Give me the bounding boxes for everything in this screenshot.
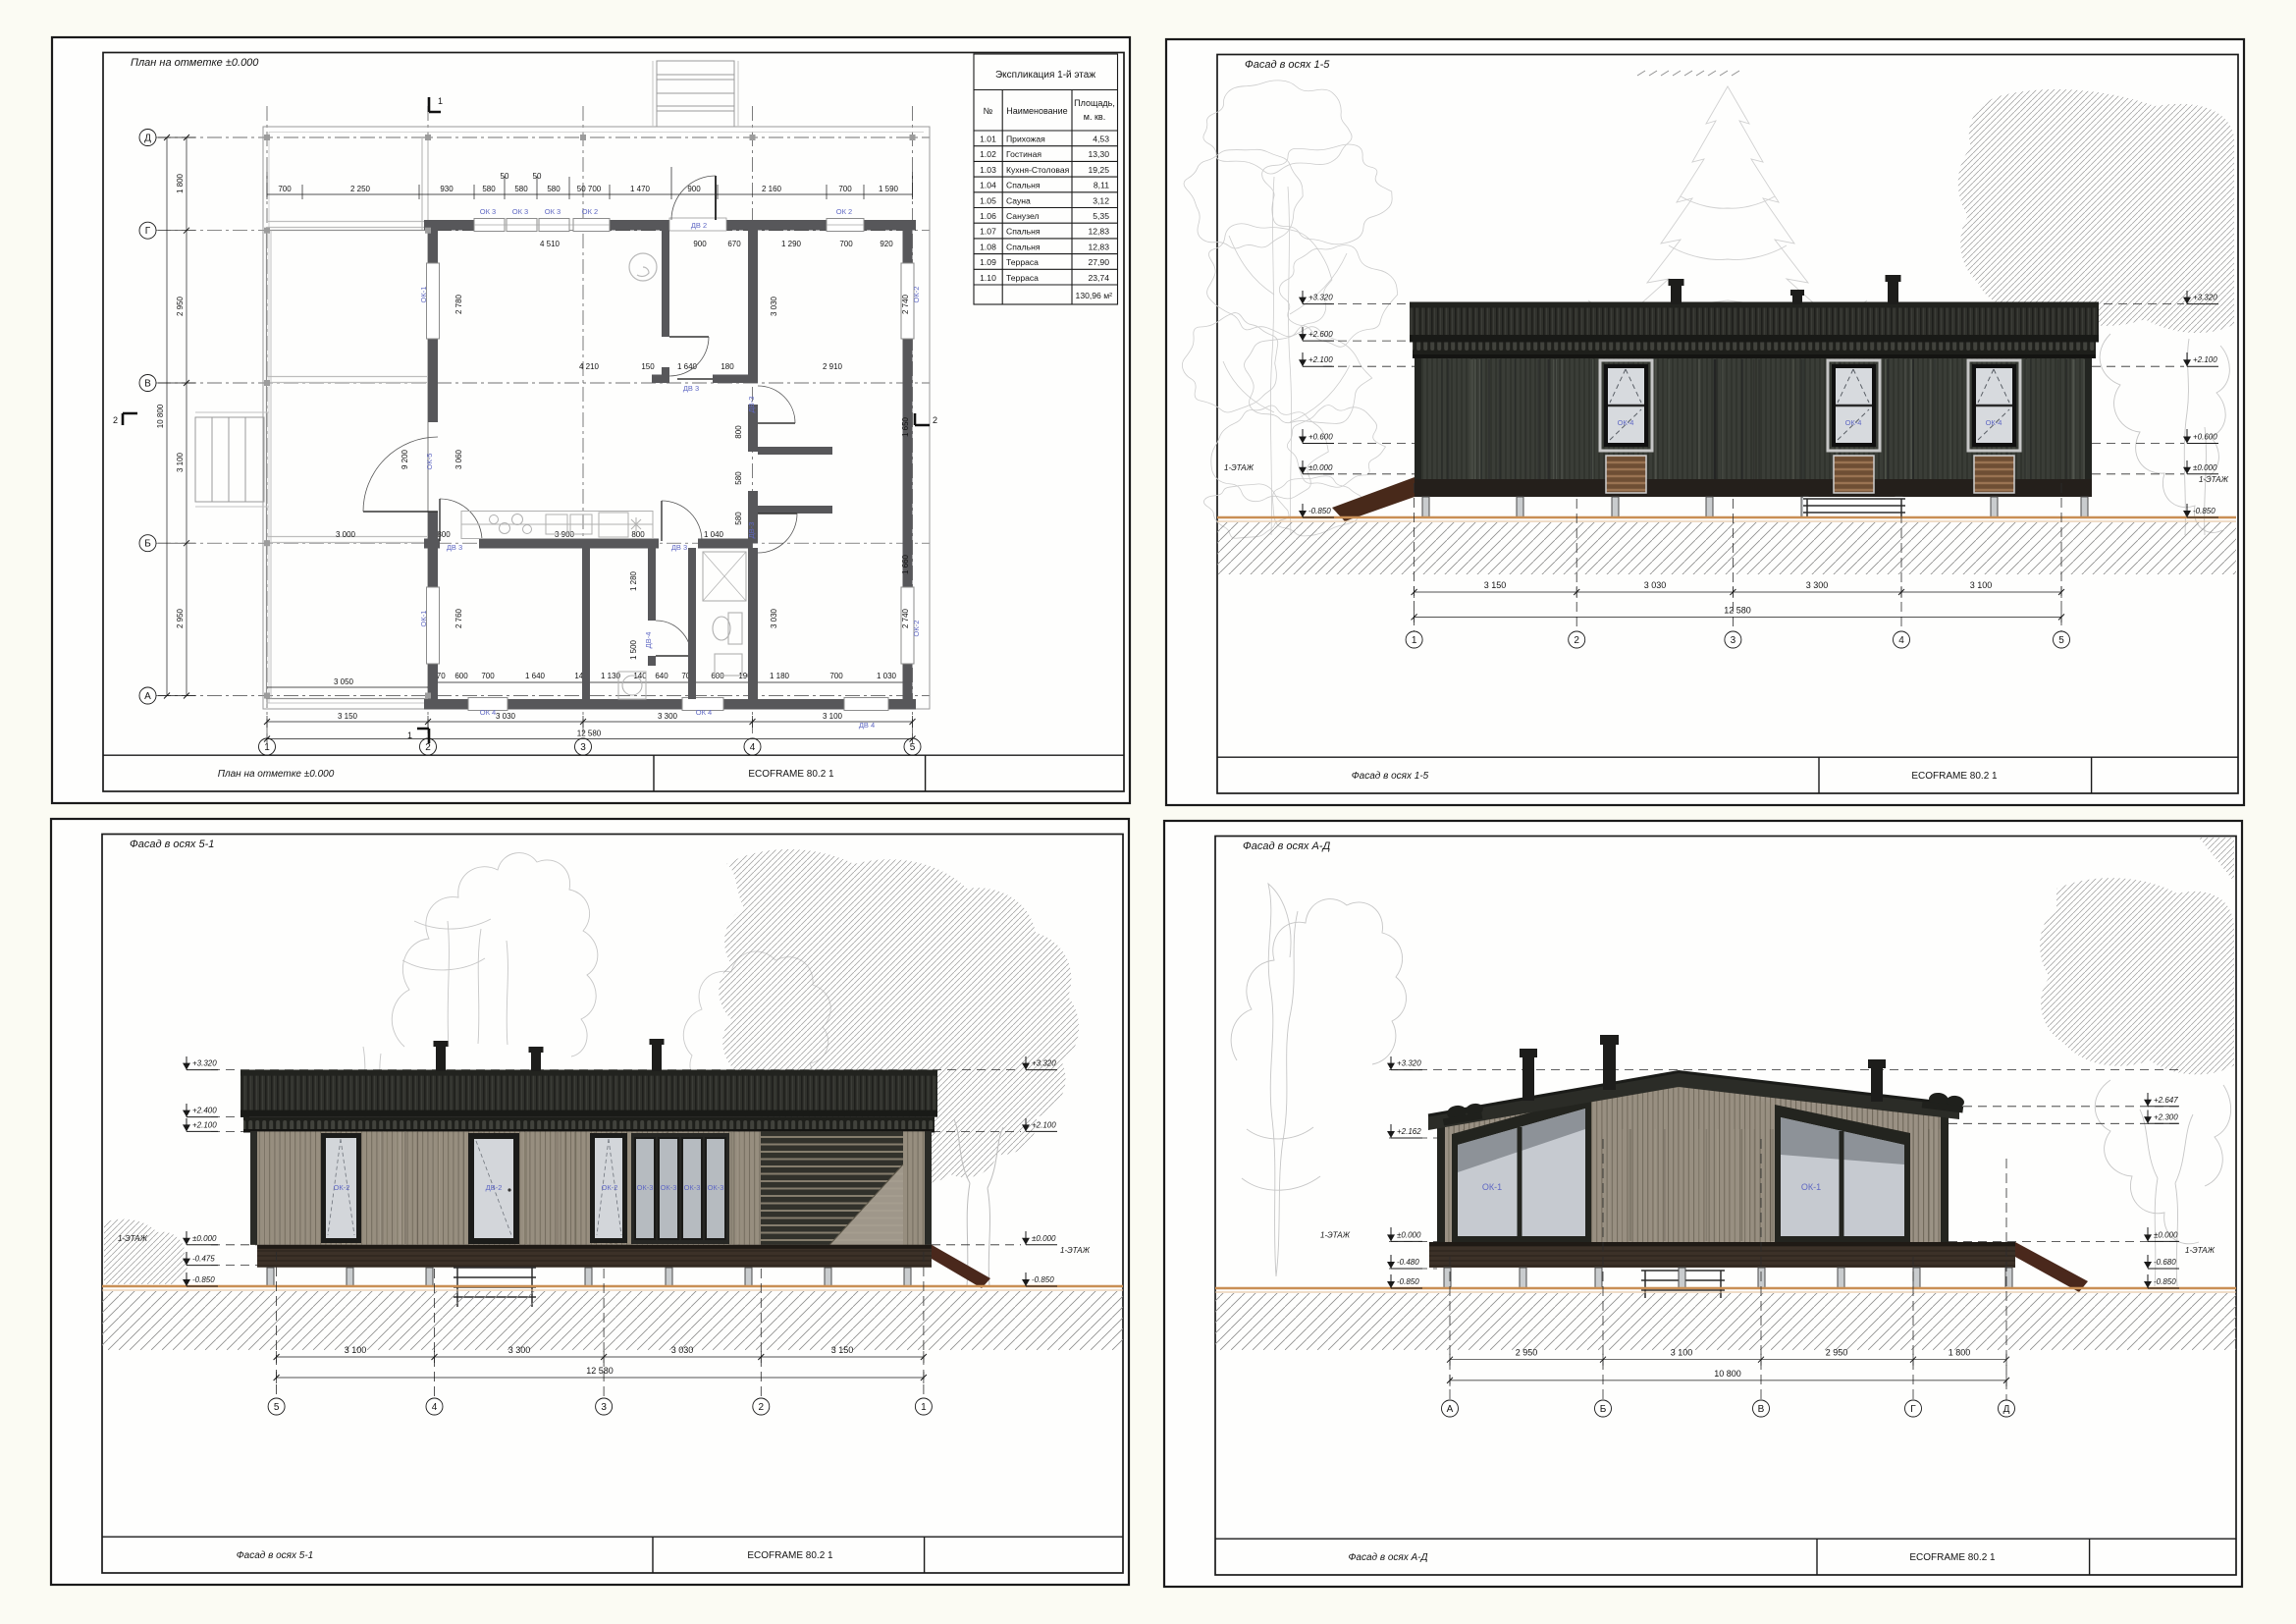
svg-text:ECOFRAME 80.2 1: ECOFRAME 80.2 1 bbox=[1911, 771, 1998, 782]
svg-text:2 250: 2 250 bbox=[350, 185, 371, 193]
svg-text:1.04: 1.04 bbox=[980, 181, 996, 190]
svg-text:1: 1 bbox=[438, 96, 443, 106]
svg-text:2 910: 2 910 bbox=[823, 362, 843, 371]
svg-text:3 030: 3 030 bbox=[1644, 580, 1667, 590]
svg-text:±0.000: ±0.000 bbox=[2193, 463, 2217, 472]
svg-text:Спальня: Спальня bbox=[1006, 227, 1041, 237]
svg-text:ОК-4: ОК-4 bbox=[1986, 418, 2002, 427]
svg-text:1 180: 1 180 bbox=[770, 672, 790, 680]
svg-text:700: 700 bbox=[839, 240, 853, 248]
svg-text:1 030: 1 030 bbox=[877, 672, 897, 680]
svg-text:50 700: 50 700 bbox=[577, 185, 602, 193]
svg-text:580: 580 bbox=[482, 185, 496, 193]
svg-text:+2.300: +2.300 bbox=[2154, 1112, 2178, 1121]
svg-text:В: В bbox=[144, 379, 151, 390]
svg-text:ОК-2: ОК-2 bbox=[912, 287, 921, 303]
svg-text:50: 50 bbox=[533, 172, 542, 181]
svg-text:180: 180 bbox=[721, 362, 734, 371]
svg-text:3 030: 3 030 bbox=[671, 1345, 694, 1355]
svg-text:3,12: 3,12 bbox=[1093, 195, 1109, 205]
svg-text:+2.100: +2.100 bbox=[1308, 355, 1333, 364]
svg-text:3 030: 3 030 bbox=[496, 712, 516, 721]
svg-text:2: 2 bbox=[425, 742, 431, 753]
svg-text:900: 900 bbox=[687, 185, 701, 193]
svg-text:ДВ-4: ДВ-4 bbox=[644, 632, 653, 649]
svg-text:4: 4 bbox=[432, 1402, 438, 1413]
svg-text:+2.100: +2.100 bbox=[192, 1120, 217, 1129]
svg-text:+3.320: +3.320 bbox=[1397, 1059, 1421, 1068]
svg-text:3 100: 3 100 bbox=[176, 452, 185, 472]
svg-text:-0.475: -0.475 bbox=[192, 1255, 215, 1264]
svg-text:130,96 м²: 130,96 м² bbox=[1076, 291, 1113, 300]
svg-text:ОК-4: ОК-4 bbox=[1618, 418, 1634, 427]
svg-text:10 800: 10 800 bbox=[156, 404, 165, 428]
svg-text:800: 800 bbox=[631, 530, 645, 539]
svg-text:Фасад в осях 5-1: Фасад в осях 5-1 bbox=[237, 1550, 314, 1561]
svg-text:5: 5 bbox=[274, 1402, 280, 1413]
svg-text:ОК-5: ОК-5 bbox=[425, 454, 434, 470]
svg-text:580: 580 bbox=[734, 471, 743, 485]
svg-text:Терраса: Терраса bbox=[1006, 273, 1039, 283]
svg-text:±0.000: ±0.000 bbox=[1032, 1234, 1056, 1243]
svg-text:2: 2 bbox=[933, 415, 937, 425]
svg-text:Фасад в осях 1-5: Фасад в осях 1-5 bbox=[1352, 771, 1429, 782]
svg-text:670: 670 bbox=[727, 240, 741, 248]
svg-text:ОК-3: ОК-3 bbox=[708, 1183, 724, 1192]
svg-text:1-ЭТАЖ: 1-ЭТАЖ bbox=[1060, 1246, 1091, 1255]
svg-text:2 780: 2 780 bbox=[454, 294, 463, 314]
svg-text:Сауна: Сауна bbox=[1006, 195, 1031, 205]
svg-text:1: 1 bbox=[921, 1402, 927, 1413]
svg-text:Фасад в осях 1-5: Фасад в осях 1-5 bbox=[1245, 59, 1330, 71]
svg-text:В: В bbox=[1758, 1404, 1765, 1415]
svg-text:12 580: 12 580 bbox=[586, 1366, 614, 1376]
svg-text:2 160: 2 160 bbox=[762, 185, 782, 193]
svg-text:5,35: 5,35 bbox=[1093, 211, 1109, 221]
svg-text:4 210: 4 210 bbox=[579, 362, 600, 371]
svg-text:+0.600: +0.600 bbox=[1308, 433, 1333, 442]
svg-text:ДВ 2: ДВ 2 bbox=[691, 221, 707, 230]
svg-text:2: 2 bbox=[759, 1402, 765, 1413]
svg-text:1 130: 1 130 bbox=[601, 672, 621, 680]
svg-text:ДВ-3: ДВ-3 bbox=[747, 397, 756, 413]
svg-text:ECOFRAME 80.2 1: ECOFRAME 80.2 1 bbox=[747, 1550, 833, 1561]
svg-text:Прихожая: Прихожая bbox=[1006, 135, 1045, 144]
svg-text:2 950: 2 950 bbox=[1516, 1348, 1538, 1358]
svg-text:3 000: 3 000 bbox=[336, 530, 356, 539]
svg-text:1-ЭТАЖ: 1-ЭТАЖ bbox=[2199, 475, 2229, 484]
svg-text:700: 700 bbox=[838, 185, 852, 193]
svg-text:ОК-2: ОК-2 bbox=[334, 1183, 350, 1192]
svg-text:ОК-1: ОК-1 bbox=[1482, 1182, 1502, 1192]
svg-text:1 660: 1 660 bbox=[901, 554, 910, 574]
svg-text:+2.400: +2.400 bbox=[192, 1107, 217, 1115]
svg-text:13,30: 13,30 bbox=[1088, 149, 1109, 159]
svg-text:ОК 2: ОК 2 bbox=[582, 207, 598, 216]
svg-text:12,83: 12,83 bbox=[1088, 227, 1109, 237]
svg-text:4: 4 bbox=[1898, 635, 1904, 646]
svg-text:+2.100: +2.100 bbox=[1032, 1120, 1056, 1129]
svg-text:+2.600: +2.600 bbox=[1308, 330, 1333, 339]
svg-text:1-ЭТАЖ: 1-ЭТАЖ bbox=[118, 1234, 148, 1243]
svg-text:12 580: 12 580 bbox=[577, 730, 602, 738]
svg-text:±0.000: ±0.000 bbox=[192, 1234, 217, 1243]
svg-text:-0.850: -0.850 bbox=[2193, 507, 2216, 515]
svg-text:3 100: 3 100 bbox=[345, 1345, 367, 1355]
svg-text:1.01: 1.01 bbox=[980, 135, 996, 144]
svg-text:+3.320: +3.320 bbox=[1308, 294, 1333, 302]
svg-text:-0.850: -0.850 bbox=[192, 1275, 215, 1284]
svg-text:Площадь,: Площадь, bbox=[1074, 98, 1115, 108]
svg-text:Фасад в осях А-Д: Фасад в осях А-Д bbox=[1348, 1552, 1427, 1563]
svg-text:Д: Д bbox=[2003, 1404, 2010, 1415]
svg-text:2: 2 bbox=[113, 415, 118, 425]
svg-text:ECOFRAME 80.2 1: ECOFRAME 80.2 1 bbox=[1909, 1552, 1996, 1563]
svg-text:1.07: 1.07 bbox=[980, 227, 996, 237]
svg-text:1 040: 1 040 bbox=[704, 530, 724, 539]
svg-text:12,83: 12,83 bbox=[1088, 242, 1109, 251]
svg-text:3 150: 3 150 bbox=[338, 712, 358, 721]
svg-text:-0.850: -0.850 bbox=[1397, 1277, 1419, 1286]
svg-text:ОК-1: ОК-1 bbox=[1801, 1182, 1821, 1192]
svg-text:Д: Д bbox=[144, 134, 151, 144]
svg-text:1 500: 1 500 bbox=[629, 639, 638, 660]
svg-text:ОК 2: ОК 2 bbox=[836, 207, 852, 216]
svg-text:3: 3 bbox=[601, 1402, 607, 1413]
svg-text:Экспликация 1-й этаж: Экспликация 1-й этаж bbox=[995, 70, 1095, 81]
svg-text:23,74: 23,74 bbox=[1088, 273, 1109, 283]
svg-text:640: 640 bbox=[655, 672, 668, 680]
svg-text:Спальня: Спальня bbox=[1006, 242, 1041, 251]
svg-text:-0.850: -0.850 bbox=[2154, 1277, 2176, 1286]
svg-text:Г: Г bbox=[1910, 1404, 1916, 1415]
svg-text:580: 580 bbox=[547, 185, 561, 193]
svg-text:1 470: 1 470 bbox=[630, 185, 651, 193]
svg-text:ОК-3: ОК-3 bbox=[661, 1183, 677, 1192]
svg-text:1: 1 bbox=[264, 742, 270, 753]
svg-text:Фасад в осях А-Д: Фасад в осях А-Д bbox=[1243, 840, 1330, 852]
svg-text:700: 700 bbox=[278, 185, 292, 193]
svg-text:-0.680: -0.680 bbox=[2154, 1258, 2176, 1267]
svg-text:1-ЭТАЖ: 1-ЭТАЖ bbox=[1320, 1230, 1351, 1239]
svg-text:4 510: 4 510 bbox=[540, 240, 561, 248]
svg-text:План на отметке ±0.000: План на отметке ±0.000 bbox=[131, 57, 259, 69]
svg-text:2 950: 2 950 bbox=[1826, 1348, 1848, 1358]
svg-text:1.10: 1.10 bbox=[980, 273, 996, 283]
svg-text:ОК-2: ОК-2 bbox=[912, 621, 921, 637]
svg-text:5: 5 bbox=[910, 742, 916, 753]
svg-text:3 100: 3 100 bbox=[823, 712, 843, 721]
svg-text:1.06: 1.06 bbox=[980, 211, 996, 221]
svg-text:3 300: 3 300 bbox=[658, 712, 678, 721]
svg-text:19,25: 19,25 bbox=[1088, 165, 1109, 175]
svg-text:930: 930 bbox=[440, 185, 454, 193]
svg-text:800: 800 bbox=[734, 425, 743, 439]
svg-text:4,53: 4,53 bbox=[1093, 135, 1109, 144]
svg-text:1.02: 1.02 bbox=[980, 149, 996, 159]
svg-text:ДВ 3: ДВ 3 bbox=[683, 384, 699, 393]
svg-text:1: 1 bbox=[1412, 635, 1417, 646]
svg-text:10 800: 10 800 bbox=[1714, 1369, 1741, 1379]
svg-text:ОК-2: ОК-2 bbox=[602, 1183, 618, 1192]
svg-text:50: 50 bbox=[501, 172, 509, 181]
svg-text:150: 150 bbox=[641, 362, 655, 371]
svg-text:2 760: 2 760 bbox=[454, 608, 463, 628]
svg-text:3: 3 bbox=[1731, 635, 1736, 646]
svg-text:ОК-1: ОК-1 bbox=[419, 287, 428, 303]
svg-text:Б: Б bbox=[144, 539, 151, 550]
svg-text:3 300: 3 300 bbox=[508, 1345, 531, 1355]
svg-text:3 100: 3 100 bbox=[1970, 580, 1993, 590]
svg-text:1.03: 1.03 bbox=[980, 165, 996, 175]
svg-text:1.09: 1.09 bbox=[980, 257, 996, 267]
svg-text:2 950: 2 950 bbox=[176, 608, 185, 628]
svg-text:Б: Б bbox=[1600, 1404, 1607, 1415]
svg-text:Спальня: Спальня bbox=[1006, 181, 1041, 190]
svg-text:1 290: 1 290 bbox=[781, 240, 802, 248]
svg-text:+0.600: +0.600 bbox=[2193, 433, 2217, 442]
svg-text:ОК-1: ОК-1 bbox=[419, 611, 428, 627]
svg-text:±0.000: ±0.000 bbox=[1308, 463, 1333, 472]
svg-text:1 800: 1 800 bbox=[1949, 1348, 1971, 1358]
svg-text:Фасад в осях 5-1: Фасад в осях 5-1 bbox=[130, 839, 214, 850]
svg-text:2 740: 2 740 bbox=[901, 294, 910, 314]
svg-text:План на отметке ±0.000: План на отметке ±0.000 bbox=[218, 769, 335, 780]
svg-text:900: 900 bbox=[693, 240, 707, 248]
svg-text:12 580: 12 580 bbox=[1724, 606, 1751, 616]
svg-text:ОК-3: ОК-3 bbox=[684, 1183, 701, 1192]
svg-text:Кухня-Столовая: Кухня-Столовая bbox=[1006, 165, 1070, 175]
svg-text:Санузел: Санузел bbox=[1006, 211, 1039, 221]
svg-text:ОК 3: ОК 3 bbox=[545, 207, 561, 216]
svg-text:А: А bbox=[144, 691, 151, 702]
svg-text:-0.850: -0.850 bbox=[1032, 1275, 1054, 1284]
svg-text:1 280: 1 280 bbox=[629, 570, 638, 591]
svg-text:+2.162: +2.162 bbox=[1397, 1127, 1421, 1136]
svg-text:3 150: 3 150 bbox=[1484, 580, 1507, 590]
svg-text:ОК 4: ОК 4 bbox=[480, 708, 496, 717]
svg-text:±0.000: ±0.000 bbox=[2154, 1230, 2178, 1239]
svg-text:№: № bbox=[984, 106, 993, 116]
svg-text:3 100: 3 100 bbox=[1671, 1348, 1693, 1358]
svg-text:Наименование: Наименование bbox=[1006, 106, 1067, 116]
svg-text:ОК 4: ОК 4 bbox=[696, 708, 712, 717]
svg-text:+2.647: +2.647 bbox=[2154, 1096, 2178, 1105]
svg-text:Терраса: Терраса bbox=[1006, 257, 1039, 267]
svg-text:2: 2 bbox=[1574, 635, 1579, 646]
svg-text:+3.320: +3.320 bbox=[192, 1059, 217, 1068]
svg-text:1.05: 1.05 bbox=[980, 195, 996, 205]
svg-text:2 950: 2 950 bbox=[176, 296, 185, 316]
svg-text:ОК 3: ОК 3 bbox=[512, 207, 528, 216]
svg-text:600: 600 bbox=[454, 672, 468, 680]
svg-text:8,11: 8,11 bbox=[1094, 181, 1109, 190]
svg-text:3: 3 bbox=[580, 742, 586, 753]
svg-text:3 050: 3 050 bbox=[334, 677, 354, 686]
svg-text:580: 580 bbox=[514, 185, 528, 193]
svg-text:3 030: 3 030 bbox=[770, 608, 778, 628]
svg-text:ДВ-2: ДВ-2 bbox=[486, 1183, 503, 1192]
svg-text:ДВ 3: ДВ 3 bbox=[671, 543, 687, 552]
svg-text:ОК-3: ОК-3 bbox=[637, 1183, 654, 1192]
svg-text:1.08: 1.08 bbox=[980, 242, 996, 251]
svg-text:3 150: 3 150 bbox=[831, 1345, 854, 1355]
svg-text:700: 700 bbox=[481, 672, 495, 680]
svg-text:3 060: 3 060 bbox=[454, 449, 463, 469]
svg-text:1-ЭТАЖ: 1-ЭТАЖ bbox=[2185, 1246, 2216, 1255]
svg-text:1 800: 1 800 bbox=[176, 173, 185, 193]
svg-text:м. кв.: м. кв. bbox=[1084, 112, 1105, 122]
svg-text:А: А bbox=[1447, 1404, 1454, 1415]
svg-text:3 300: 3 300 bbox=[1806, 580, 1829, 590]
svg-text:-0.850: -0.850 bbox=[1308, 507, 1331, 515]
svg-text:4: 4 bbox=[750, 742, 756, 753]
svg-text:5: 5 bbox=[2058, 635, 2064, 646]
svg-text:+2.100: +2.100 bbox=[2193, 355, 2217, 364]
svg-text:3 030: 3 030 bbox=[770, 296, 778, 316]
svg-text:ДВ 3: ДВ 3 bbox=[447, 543, 462, 552]
svg-text:1 590: 1 590 bbox=[879, 185, 899, 193]
svg-text:1 640: 1 640 bbox=[525, 672, 546, 680]
svg-text:1-ЭТАЖ: 1-ЭТАЖ bbox=[1224, 463, 1255, 472]
svg-text:ECOFRAME 80.2 1: ECOFRAME 80.2 1 bbox=[748, 769, 834, 780]
svg-text:580: 580 bbox=[734, 512, 743, 525]
svg-text:±0.000: ±0.000 bbox=[1397, 1230, 1421, 1239]
svg-text:ОК-4: ОК-4 bbox=[1845, 418, 1862, 427]
svg-text:2 740: 2 740 bbox=[901, 608, 910, 628]
svg-text:ДВ-3: ДВ-3 bbox=[747, 522, 756, 539]
svg-text:+3.320: +3.320 bbox=[2193, 294, 2217, 302]
svg-text:Г: Г bbox=[145, 226, 151, 237]
svg-text:ОК 3: ОК 3 bbox=[480, 207, 496, 216]
svg-text:1 650: 1 650 bbox=[901, 416, 910, 437]
svg-text:-0.480: -0.480 bbox=[1397, 1258, 1419, 1267]
svg-text:9 200: 9 200 bbox=[400, 449, 409, 469]
svg-text:27,90: 27,90 bbox=[1088, 257, 1109, 267]
svg-text:920: 920 bbox=[880, 240, 893, 248]
svg-text:700: 700 bbox=[829, 672, 843, 680]
svg-text:Гостиная: Гостиная bbox=[1006, 149, 1041, 159]
svg-text:+3.320: +3.320 bbox=[1032, 1059, 1056, 1068]
svg-text:ДВ 4: ДВ 4 bbox=[859, 721, 875, 730]
